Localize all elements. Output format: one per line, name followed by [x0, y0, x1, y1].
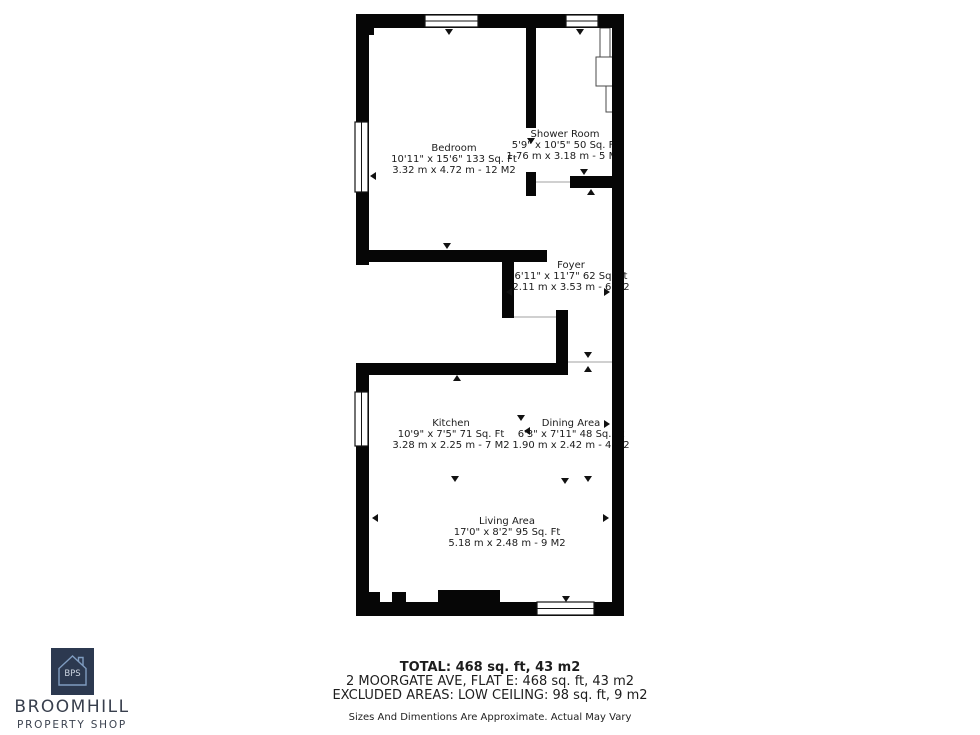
room-labels: Bedroom 10'11" x 15'6" 133 Sq. Ft 3.32 m…: [391, 129, 629, 549]
dimension-arrow: [453, 375, 461, 381]
dimension-arrow: [372, 514, 378, 522]
wall-kitchen-top: [356, 363, 568, 375]
chimney-breast: [362, 592, 380, 602]
wall-foyer-left-upper: [502, 250, 514, 318]
floorplan-page: Bedroom 10'11" x 15'6" 133 Sq. Ft 3.32 m…: [0, 0, 980, 735]
dimension-arrow: [445, 29, 453, 35]
wall-right: [612, 14, 624, 616]
room-label-kitchen: Kitchen 10'9" x 7'5" 71 Sq. Ft 3.28 m x …: [392, 418, 509, 451]
wall-bedroom-shower-divider: [526, 28, 536, 128]
room-dims-ft: 17'0" x 8'2" 95 Sq. Ft: [454, 527, 561, 538]
dimension-arrow: [443, 243, 451, 249]
room-name: Dining Area: [542, 418, 600, 429]
room-dims-m: 5.18 m x 2.48 m - 9 M2: [448, 538, 565, 549]
room-dims-m: 3.28 m x 2.25 m - 7 M2: [392, 440, 509, 451]
room-name: Bedroom: [431, 143, 476, 154]
dimension-arrow: [561, 478, 569, 484]
dimension-arrow: [587, 189, 595, 195]
room-dims-ft: 10'9" x 7'5" 71 Sq. Ft: [398, 429, 505, 440]
window-bedroom-left: [355, 122, 368, 192]
room-name: Foyer: [557, 260, 586, 271]
dimension-arrow: [604, 420, 610, 428]
dimension-arrow: [580, 169, 588, 175]
footer-total: TOTAL: 468 sq. ft, 43 m2: [0, 660, 980, 675]
dimension-arrow: [517, 415, 525, 421]
window-shower-top: [566, 15, 598, 27]
room-label-bedroom: Bedroom 10'11" x 15'6" 133 Sq. Ft 3.32 m…: [391, 143, 517, 176]
window-bedroom-top: [425, 15, 478, 27]
room-name: Living Area: [479, 516, 535, 527]
room-dims-ft: 10'11" x 15'6" 133 Sq. Ft: [391, 154, 517, 165]
wall-shower-bottom: [570, 176, 612, 188]
dimension-arrow: [603, 514, 609, 522]
floor-plan: Bedroom 10'11" x 15'6" 133 Sq. Ft 3.32 m…: [0, 0, 980, 735]
wall-bedroom-bottom: [356, 250, 547, 262]
dimension-arrow: [562, 596, 570, 602]
room-dims-ft: 6'3" x 7'11" 48 Sq. Ft: [518, 429, 625, 440]
footer-address: 2 MOORGATE AVE, FLAT E: 468 sq. ft, 43 m…: [0, 675, 980, 689]
room-dims-m: 3.32 m x 4.72 m - 12 M2: [392, 165, 516, 176]
room-dims-ft: 5'9" x 10'5" 50 Sq. Ft: [512, 140, 619, 151]
dimension-arrow: [451, 476, 459, 482]
shower-fixture: [600, 28, 610, 58]
window-kitchen-left: [355, 392, 368, 446]
dimension-arrow: [576, 29, 584, 35]
chimney-breast: [438, 590, 500, 602]
dimension-arrow: [584, 366, 592, 372]
room-name: Kitchen: [432, 418, 470, 429]
wall-foyer-lower-left: [556, 310, 568, 375]
wall-divider-stub: [526, 172, 536, 196]
dimension-arrow: [584, 352, 592, 358]
footer-disclaimer: Sizes And Dimentions Are Approximate. Ac…: [0, 712, 980, 723]
plan-footer: TOTAL: 468 sq. ft, 43 m2 2 MOORGATE AVE,…: [0, 660, 980, 723]
dimension-arrow: [584, 476, 592, 482]
room-dims-m: 1.76 m x 3.18 m - 5 M2: [506, 151, 623, 162]
chimney-breast: [392, 592, 406, 602]
dimension-arrow: [370, 172, 376, 180]
room-name: Shower Room: [531, 129, 600, 140]
room-dims-ft: 6'11" x 11'7" 62 Sq. Ft: [515, 271, 628, 282]
room-label-living-area: Living Area 17'0" x 8'2" 95 Sq. Ft 5.18 …: [448, 516, 565, 549]
window-living-bottom: [537, 602, 594, 615]
room-label-shower-room: Shower Room 5'9" x 10'5" 50 Sq. Ft 1.76 …: [506, 129, 623, 162]
wall-corner-notch: [369, 28, 374, 35]
footer-excluded-areas: EXCLUDED AREAS: LOW CEILING: 98 sq. ft, …: [0, 689, 980, 703]
